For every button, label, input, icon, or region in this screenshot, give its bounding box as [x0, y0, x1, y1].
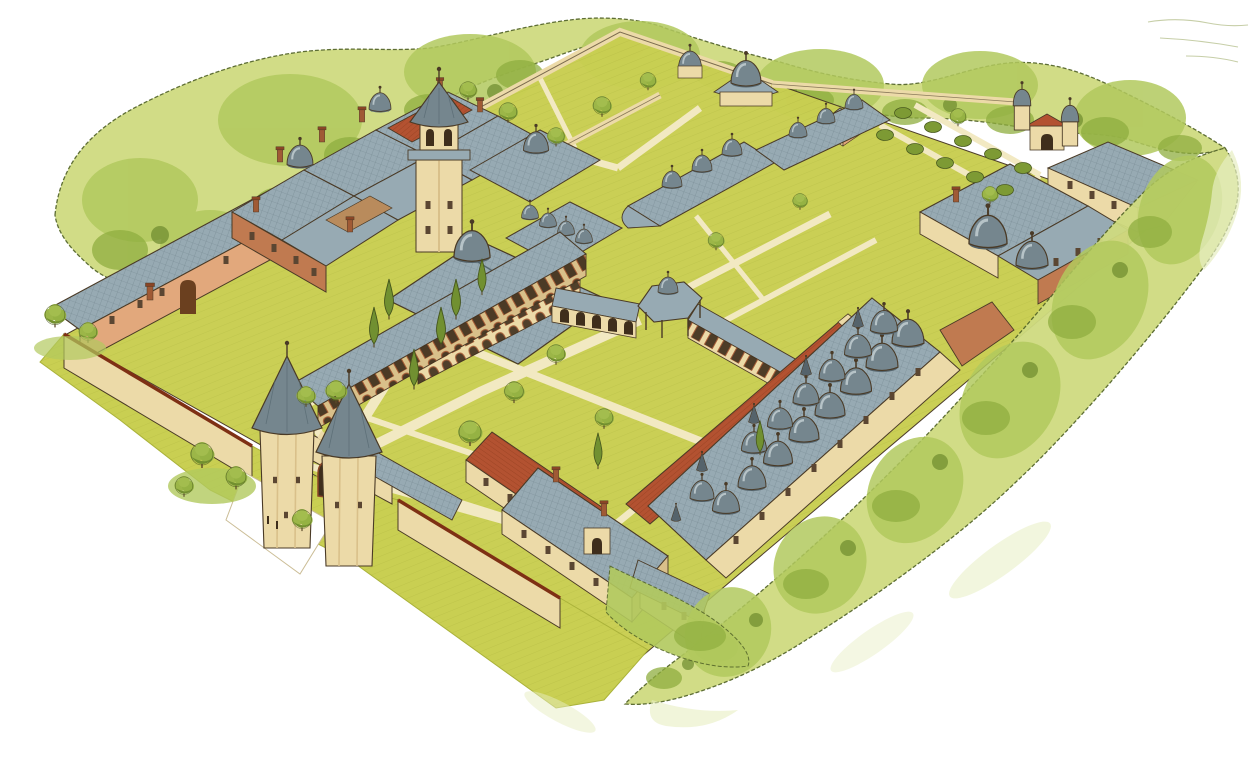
sketch-lines [1148, 20, 1248, 62]
stables-door [180, 280, 196, 314]
palace-illustration: Aerial watercolor illustration of an Ott… [0, 0, 1260, 764]
